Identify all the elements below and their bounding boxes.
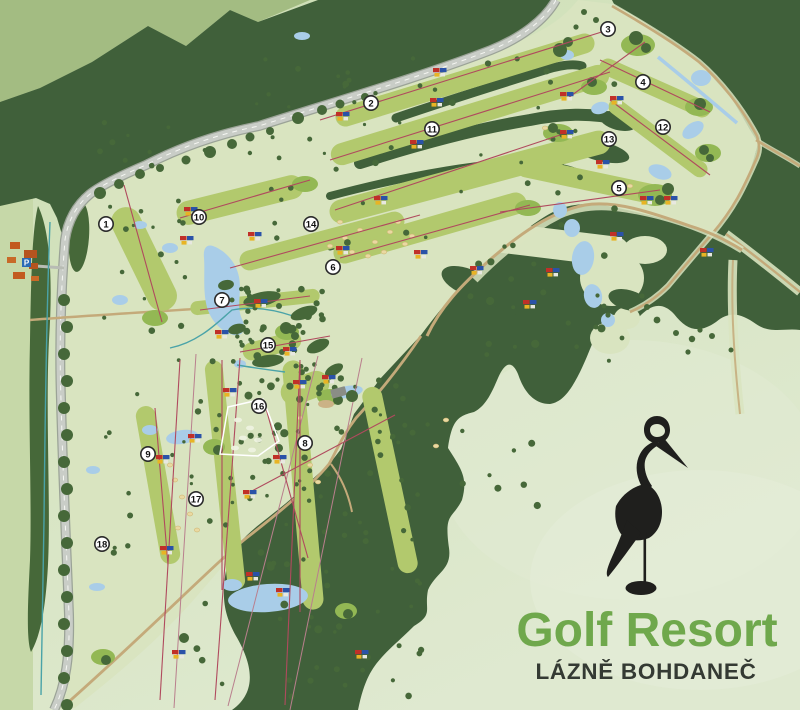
svg-text:8: 8: [302, 438, 307, 449]
svg-text:12: 12: [658, 122, 669, 133]
svg-text:7: 7: [219, 295, 224, 306]
svg-text:3: 3: [605, 24, 610, 35]
svg-text:16: 16: [254, 401, 265, 412]
svg-text:17: 17: [191, 494, 202, 505]
svg-text:LÁZNĚ BOHDANEČ: LÁZNĚ BOHDANEČ: [535, 659, 756, 684]
svg-text:11: 11: [427, 124, 438, 135]
svg-text:1: 1: [103, 219, 109, 230]
svg-text:4: 4: [640, 77, 646, 88]
svg-text:2: 2: [368, 98, 373, 109]
svg-text:14: 14: [306, 219, 317, 230]
svg-text:5: 5: [616, 183, 622, 194]
svg-text:18: 18: [97, 539, 108, 550]
svg-text:13: 13: [604, 134, 615, 145]
svg-text:Golf Resort: Golf Resort: [516, 604, 777, 657]
svg-text:15: 15: [263, 340, 274, 351]
svg-text:9: 9: [145, 449, 150, 460]
svg-text:10: 10: [194, 212, 205, 223]
svg-text:6: 6: [330, 262, 335, 273]
svg-text:P: P: [24, 259, 30, 268]
